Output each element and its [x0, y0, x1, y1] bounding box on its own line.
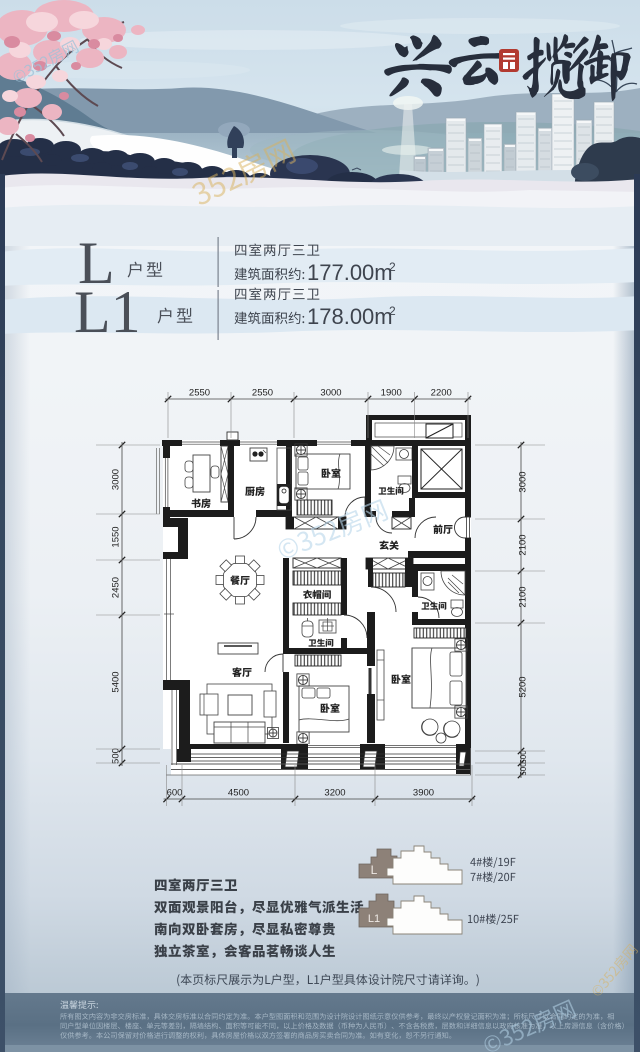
svg-text:177.00m: 177.00m	[307, 260, 393, 285]
svg-text:5400: 5400	[111, 671, 122, 692]
svg-text:2450: 2450	[111, 577, 122, 598]
svg-text:1900: 1900	[381, 388, 402, 399]
svg-text:3900: 3900	[413, 788, 434, 799]
svg-text:L1: L1	[368, 913, 380, 925]
svg-text:L1: L1	[74, 279, 141, 345]
svg-text:3200: 3200	[324, 788, 345, 799]
svg-text:2550: 2550	[252, 388, 273, 399]
svg-text:1550: 1550	[111, 526, 122, 547]
svg-text:2100: 2100	[518, 534, 529, 555]
svg-text:4500: 4500	[228, 788, 249, 799]
svg-text:5200: 5200	[518, 676, 529, 697]
svg-text:3000: 3000	[320, 388, 341, 399]
svg-text:L: L	[371, 863, 378, 877]
svg-text:500: 500	[111, 748, 122, 764]
svg-text:2200: 2200	[431, 388, 452, 399]
svg-text:3000: 3000	[111, 469, 122, 490]
svg-text:600: 600	[167, 788, 183, 799]
svg-text:2100: 2100	[518, 586, 529, 607]
svg-text:500: 500	[519, 750, 528, 764]
svg-text:2550: 2550	[189, 388, 210, 399]
svg-text:500: 500	[519, 762, 528, 776]
svg-text:3000: 3000	[518, 471, 529, 492]
svg-text:2: 2	[389, 304, 396, 318]
svg-text:178.00m: 178.00m	[307, 304, 393, 329]
svg-text:2: 2	[389, 260, 396, 274]
